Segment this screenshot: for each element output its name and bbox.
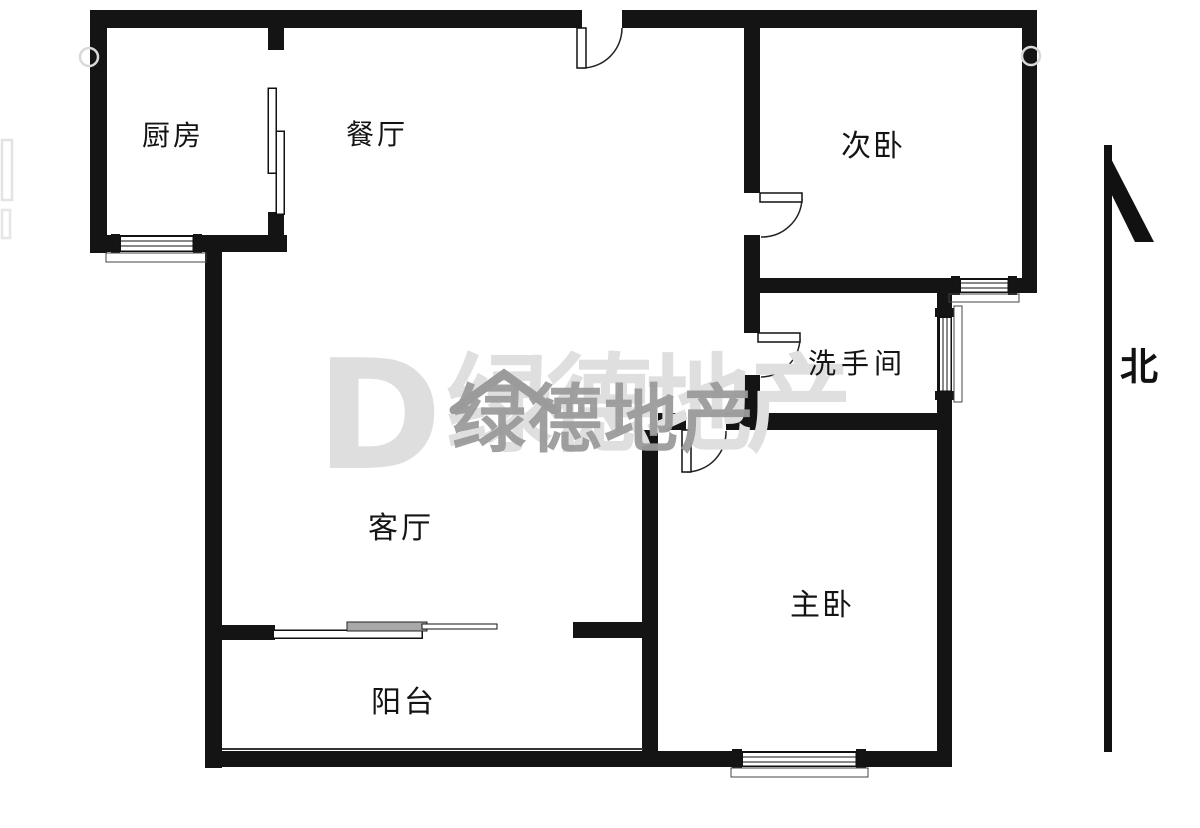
- label-north: 北: [1120, 348, 1158, 386]
- label-second-bedroom: 次卧: [841, 132, 905, 162]
- label-kitchen: 厨房: [142, 122, 204, 150]
- label-living-room: 客厅: [368, 514, 434, 544]
- room-labels: 厨房 餐厅 次卧 洗手间 客厅 主卧 阳台 北: [0, 0, 1200, 828]
- label-balcony: 阳台: [371, 688, 437, 718]
- floor-plan-canvas: D 绿德地产 绿德地产 厨房 餐厅 次卧 洗手间 客厅 主卧 阳台 北: [0, 0, 1200, 828]
- label-master-bedroom: 主卧: [790, 591, 854, 621]
- label-bathroom: 洗手间: [808, 350, 907, 378]
- label-dining: 餐厅: [346, 121, 408, 149]
